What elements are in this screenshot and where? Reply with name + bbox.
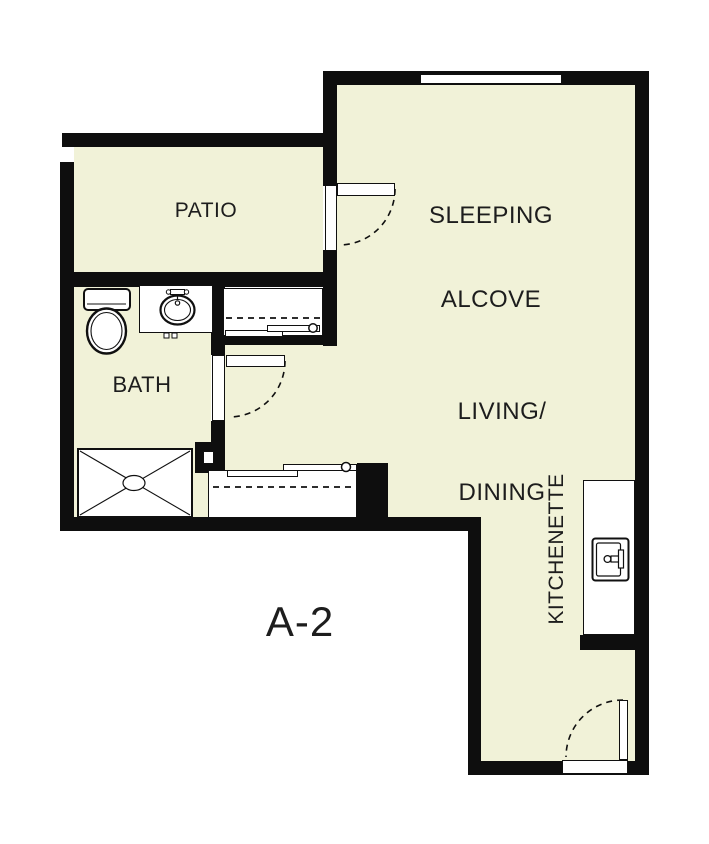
entry-door-panel xyxy=(619,700,628,760)
bath-label: BATH xyxy=(82,372,202,398)
sleeping-alcove-label: SLEEPING ALCOVE xyxy=(391,146,591,370)
wall-alcove-left-lower xyxy=(323,250,337,346)
sleeping-alcove-label-line2: ALCOVE xyxy=(391,286,591,314)
shower-icon xyxy=(77,448,193,518)
wall-alcove-left-upper xyxy=(323,71,337,186)
entry-door-threshold xyxy=(562,760,628,774)
wall-closet-right xyxy=(357,463,388,518)
patio-door-panel xyxy=(337,183,395,196)
closet-lower xyxy=(208,470,357,518)
vanity-counter xyxy=(139,285,213,333)
bath-door-panel xyxy=(226,355,285,367)
patio-label: PATIO xyxy=(146,199,266,223)
sliding-closet-door-icon xyxy=(267,325,320,332)
kitchenette-label: KITCHENETTE xyxy=(545,464,569,634)
wall-notch xyxy=(203,451,214,464)
sleeping-alcove-label-line1: SLEEPING xyxy=(391,202,591,230)
wall-left xyxy=(60,162,74,531)
unit-label: A-2 xyxy=(230,598,370,646)
patio-door-jamb xyxy=(325,185,337,251)
floor-plan: PATIO SLEEPING ALCOVE LIVING/ DINING BAT… xyxy=(0,0,709,844)
wall-kitchenette-stub xyxy=(580,635,637,650)
wall-bath-bottom xyxy=(60,517,481,531)
wall-bath-divider-lower xyxy=(211,421,225,473)
wall-patio-top xyxy=(62,133,337,147)
sliding-closet-door-icon xyxy=(283,464,357,471)
kitchenette-counter xyxy=(583,480,635,635)
window-icon xyxy=(420,74,562,84)
wall-right xyxy=(635,71,649,775)
living-dining-label-line1: LIVING/ xyxy=(422,398,582,425)
sliding-closet-door-icon xyxy=(227,470,298,477)
bath-door-jamb xyxy=(212,355,225,421)
